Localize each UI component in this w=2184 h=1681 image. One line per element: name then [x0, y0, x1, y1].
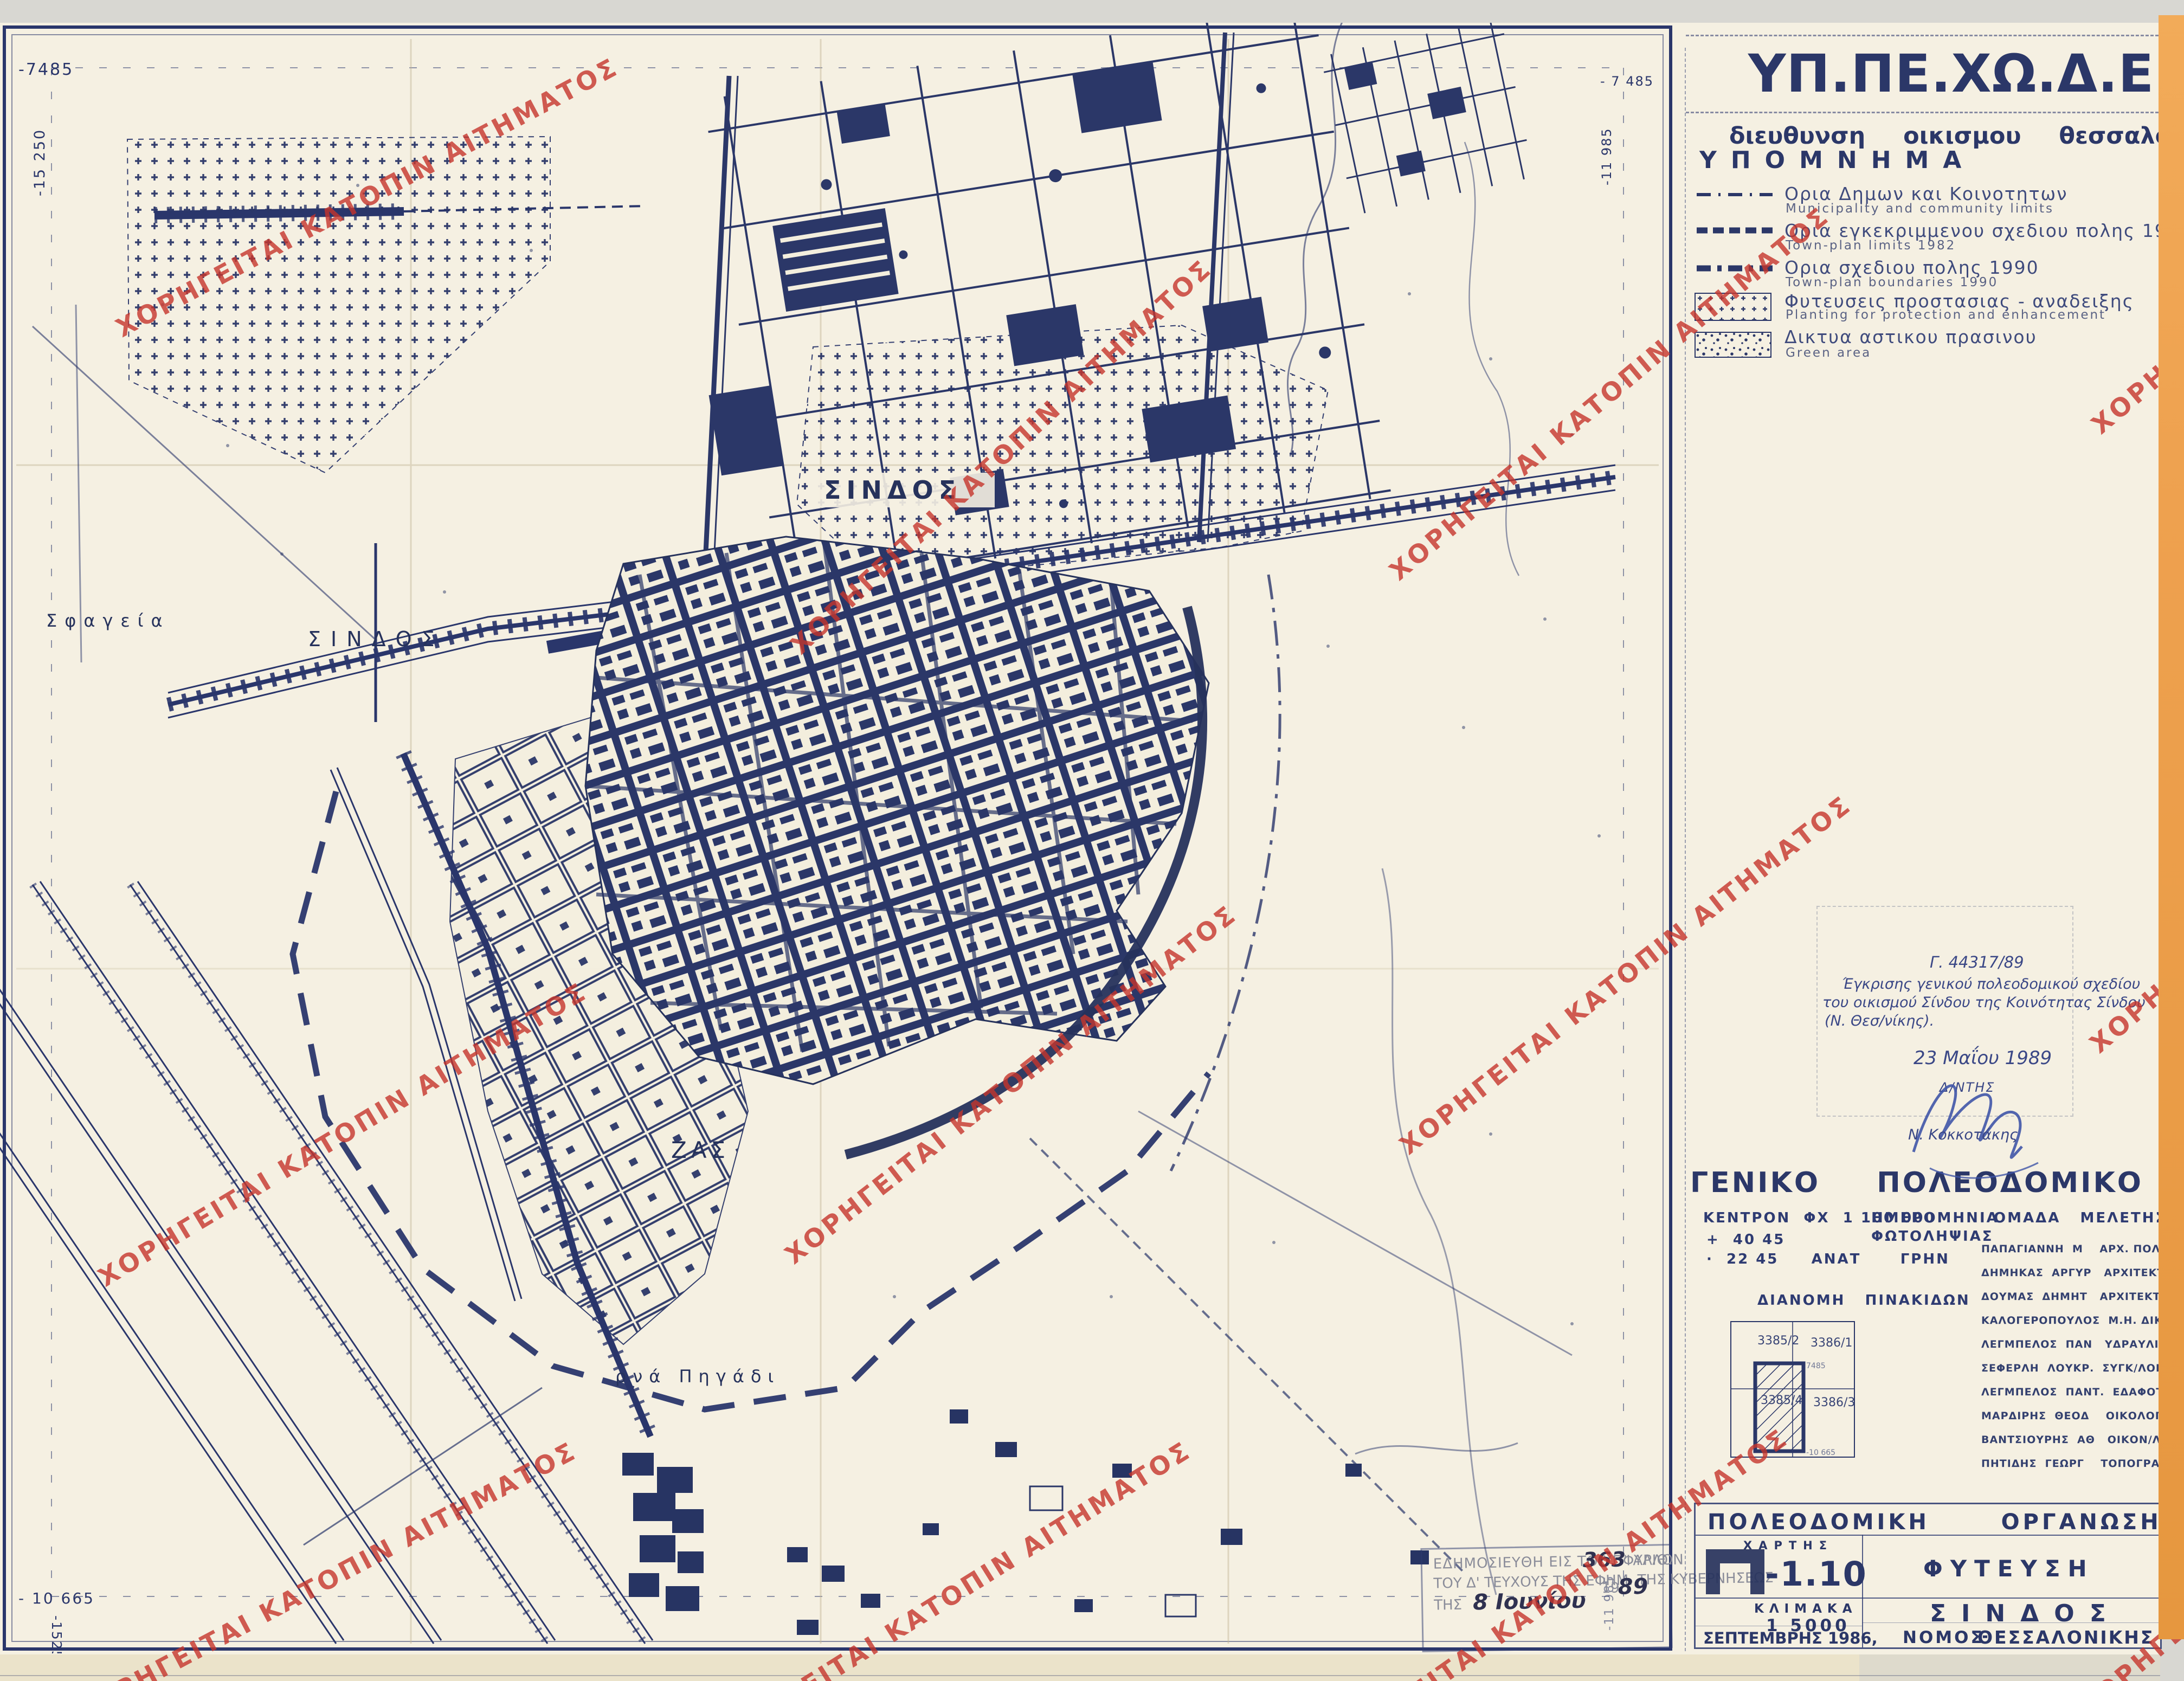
streams	[1288, 23, 1519, 1595]
bottom-edge-line	[0, 1675, 2160, 1676]
title-rule-top	[1686, 35, 2159, 36]
signature-scribble	[1897, 1060, 2060, 1179]
farm-buildings	[622, 1409, 1429, 1635]
map-theme: ΦΥΤΕΥΣΗ	[1923, 1555, 2095, 1582]
prefecture-label: ΝΟΜΟΣ	[1903, 1628, 1985, 1647]
gps-team-label: ΟΜΑΔΑ ΜΕΛΕΤΗΣ	[1994, 1210, 2167, 1226]
coord-top-left-x: -7485	[18, 60, 74, 79]
approval-ref: Γ. 44317/89	[1930, 953, 2024, 971]
gps-longitude: · 22 45 ΑΝΑΤ ΓΡΗΝ	[1706, 1251, 1950, 1267]
team-member: ΚΑΛΟΓΕΡΟΠΟΥΛΟΣ Μ.Η. ΔΙΚΤΥΩΝ	[1981, 1309, 2184, 1332]
team-member: ΜΑΡΔΙΡΗΣ ΘΕΟΔ ΟΙΚΟΛΟΓΟΣ	[1981, 1404, 2184, 1428]
coord-top-left-y: -15 250	[31, 128, 48, 196]
team-member: ΠΑΠΑΓΙΑΝΝΗ Μ ΑΡΧ. ΠΟΛΕΟΔ	[1981, 1237, 2184, 1261]
index-coord-top: 7485	[1806, 1362, 1826, 1370]
legend-symbol-plan-1982	[1697, 226, 1773, 237]
index-quadrant: 3386/3	[1813, 1396, 1855, 1409]
map-series-letter-pi	[1704, 1548, 1765, 1594]
study-team-list: ΠΑΠΑΓΙΑΝΝΗ Μ ΑΡΧ. ΠΟΛΕΟΔ ΔΗΜΗΚΑΣ ΑΡΓΥΡ Α…	[1981, 1237, 2184, 1476]
gps-latitude: + 40 45	[1706, 1232, 1785, 1248]
sheet-index-map: 3385/2 3386/1 3385/4 3386/3 7485 -10 665	[1729, 1318, 1857, 1460]
agency-title: ΥΠ.ΠΕ.ΧΩ.Δ.Ε	[1748, 43, 2154, 104]
legend-symbol-municipal-boundary	[1697, 190, 1773, 202]
title-block-divider	[1696, 1535, 2160, 1536]
approval-line3: (Ν. Θεσ/νίκης).	[1825, 1013, 1934, 1029]
title-rule-bottom	[1686, 112, 2159, 113]
title-block: ΠΟΛΕΟΔΟΜΙΚΗ ΟΡΓΑΝΩΣΗ - ΛΕΙΤΟΥΡΓΙΕΣ ΧΑΡΤΗ…	[1694, 1503, 2162, 1649]
stamp-year-printed: 19	[1601, 1580, 1620, 1597]
legend-heading: ΥΠΟΜΝΗΜΑ	[1699, 146, 1975, 174]
coord-bottom-left-y: -15250	[49, 1615, 65, 1653]
stamp-line3: ΤΗΣ	[1434, 1597, 1462, 1614]
legend-item-en: Green area	[1786, 346, 1871, 360]
coord-top-right-x: - 7 485	[1600, 74, 1654, 89]
title-block-divider	[1696, 1598, 2160, 1599]
legend-item-el: Δικτυα αστικου πρασινου	[1784, 326, 2037, 347]
team-member: ΣΕΦΕΡΛΗ ΛΟΥΚΡ. ΣΥΓΚ/ΛΟΓΟΣ	[1981, 1356, 2184, 1380]
team-member: ΔΗΜΗΚΑΣ ΑΡΓΥΡ ΑΡΧΙΤΕΚΤΩΝ	[1981, 1261, 2184, 1285]
stamp-year-handwritten: 89	[1618, 1574, 1648, 1600]
bottom-paper-strip	[0, 1654, 2160, 1681]
prefecture-name: ΘΕΣΣΑΛΟΝΙΚΗΣ	[1977, 1627, 2154, 1648]
gps-photo-date-label1: ΗΜΕΡΟΜΗΝΙΑ	[1871, 1210, 1999, 1226]
gps-photo-date-label2: ΦΩΤΟΛΗΨΙΑΣ	[1871, 1228, 1994, 1245]
team-member: ΛΕΓΜΠΕΛΟΣ ΠΑΝ ΥΔΡΑΥΛΙΚΟΣ	[1981, 1332, 2184, 1356]
scanned-map-document: -7485 -15 250 - 7 485 -11 985 - 10 665 -…	[0, 0, 2184, 1681]
legend-item-en: Town-plan boundaries 1990	[1786, 275, 1998, 289]
label-sindos-left: ΣΙΝΔΟΣ	[308, 627, 444, 651]
team-member: ΠΗΤΙΔΗΣ ΓΕΩΡΓ ΤΟΠΟΓΡΑΦΟΣ	[1981, 1452, 2184, 1476]
orange-backing-strip	[2159, 15, 2184, 1639]
agency-subtitle: διευθυνση οικισμου θεσσαλονικης	[1729, 123, 2184, 150]
approval-line2: του οικισμού Σίνδου της Κοινότητας Σίνδο…	[1822, 994, 2146, 1011]
coord-top-right-y: -11 985	[1599, 127, 1614, 185]
label-zas: ΖΑΣ	[671, 1137, 730, 1163]
team-member: ΔΟΥΜΑΣ ΔΗΜΗΤ ΑΡΧΙΤΕΚΤΩΝ	[1981, 1285, 2184, 1309]
index-quadrant: 3385/2	[1757, 1334, 1799, 1348]
label-pigadi: ρνά Πηγάδι	[615, 1366, 780, 1387]
coord-bottom-left-x: - 10 665	[18, 1589, 95, 1607]
index-quadrant: 3386/1	[1811, 1336, 1852, 1350]
gps-sheet-index-label: ΔΙΑΝΟΜΗ ΠΙΝΑΚΙΔΩΝ	[1757, 1292, 1970, 1309]
map-number: -1.10	[1765, 1554, 1867, 1594]
label-slaughterhouse: Σφαγεία	[46, 610, 170, 631]
index-quadrant: 3385/4	[1761, 1394, 1802, 1407]
index-coord-bottom: -10 665	[1806, 1448, 1835, 1457]
team-member: ΛΕΓΜΠΕΛΟΣ ΠΑΝΤ. ΕΔΑΦΟΤ/ΚΟΣ	[1981, 1380, 2184, 1404]
approval-signature-name: Ν. Κοκκοτάκης	[1908, 1126, 2018, 1143]
legend-symbol-green-area	[1695, 332, 1771, 360]
northeast-blocks	[1320, 23, 1535, 215]
title-block-header: ΠΟΛΕΟΔΟΜΙΚΗ ΟΡΓΑΝΩΣΗ - ΛΕΙΤΟΥΡΓΙΕΣ	[1708, 1510, 2184, 1535]
issue-date: ΣΕΠΤΕΜΒΡΗΣ 1986,	[1703, 1629, 1878, 1647]
team-member: ΒΑΝΤΣΙΟΥΡΗΣ ΑΘ ΟΙΚΟΝ/ΛΟΓΟΣ	[1981, 1428, 2184, 1452]
scale-label: ΚΛΙΜΑΚΑ	[1754, 1602, 1858, 1616]
town-name: ΣΙΝΔΟΣ	[1930, 1600, 2121, 1627]
panel-divider	[1685, 48, 1686, 1651]
approval-line1: Έγκρισης γενικού πολεοδομικού σχεδίου	[1842, 976, 2140, 993]
legend-item-en: Planting for protection and enhancement	[1786, 308, 2106, 322]
